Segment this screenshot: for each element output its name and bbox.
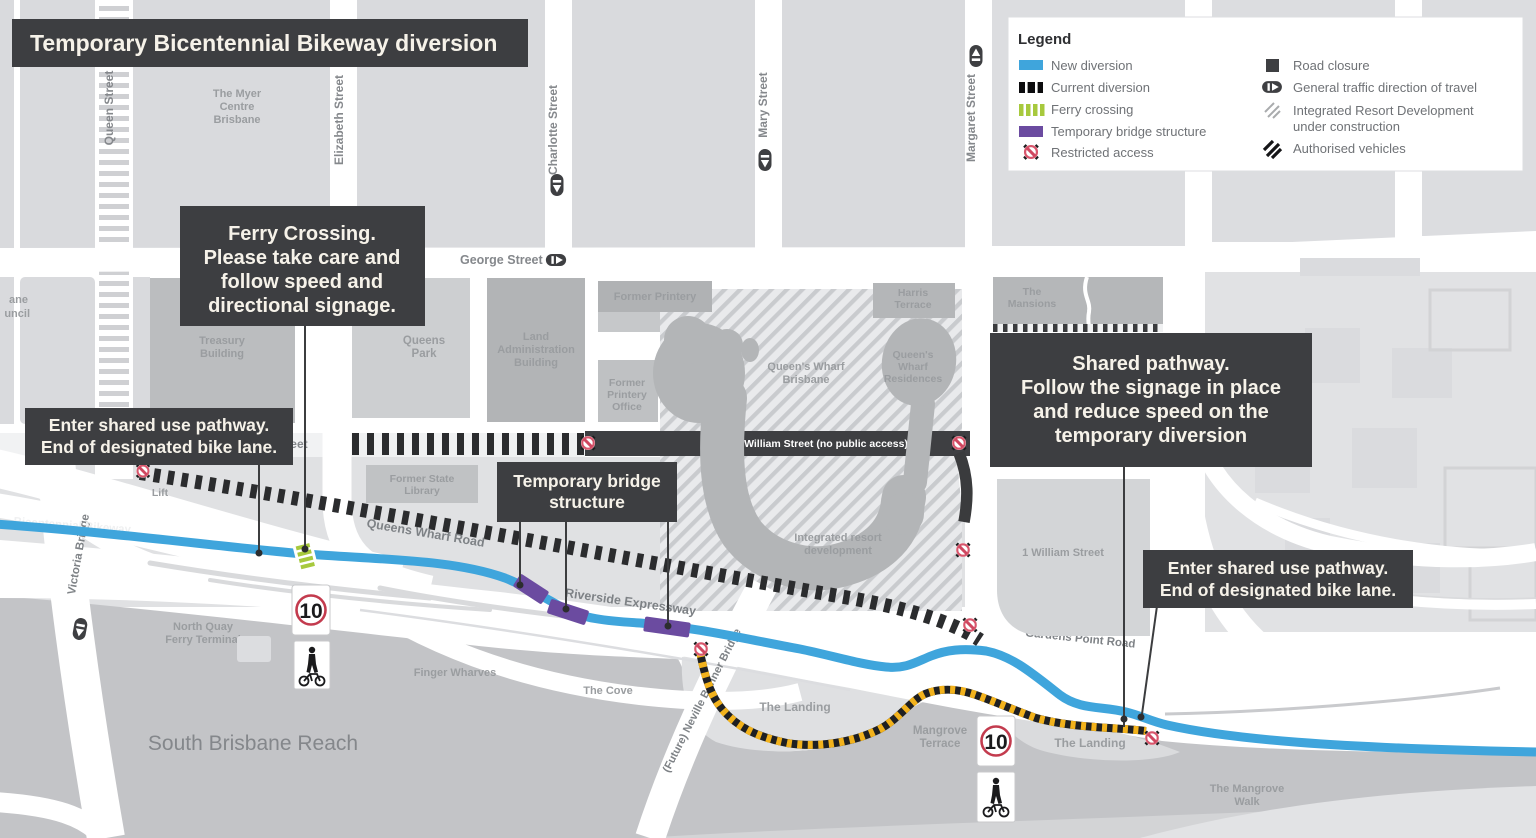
svg-text:The Mangrove: The Mangrove — [1210, 783, 1285, 795]
svg-text:Queen's: Queen's — [892, 349, 933, 361]
svg-text:Integrated resort: Integrated resort — [794, 532, 882, 544]
svg-text:Ferry Terminal: Ferry Terminal — [165, 634, 241, 646]
svg-text:Integrated Resort Development: Integrated Resort Development — [1293, 103, 1474, 118]
svg-text:William Street (no public acce: William Street (no public access) — [744, 438, 908, 450]
svg-text:The: The — [1023, 286, 1042, 298]
svg-text:Road closure: Road closure — [1293, 58, 1370, 73]
svg-text:temporary diversion: temporary diversion — [1055, 425, 1247, 447]
svg-text:North Quay: North Quay — [173, 621, 234, 633]
svg-text:Ferry crossing: Ferry crossing — [1051, 102, 1133, 117]
svg-text:Ferry Crossing.: Ferry Crossing. — [228, 223, 376, 245]
svg-text:Mary Street: Mary Street — [756, 72, 770, 137]
svg-text:Printery: Printery — [607, 389, 647, 401]
svg-text:Library: Library — [404, 485, 440, 497]
svg-text:directional signage.: directional signage. — [208, 295, 396, 317]
svg-text:uncil: uncil — [4, 308, 30, 320]
svg-text:Authorised vehicles: Authorised vehicles — [1293, 141, 1406, 156]
svg-text:Temporary bridge: Temporary bridge — [513, 471, 661, 491]
svg-text:South Brisbane Reach: South Brisbane Reach — [148, 732, 358, 755]
svg-text:Shared pathway.: Shared pathway. — [1072, 353, 1229, 375]
svg-text:Harris: Harris — [898, 287, 929, 299]
svg-text:Walk: Walk — [1234, 796, 1260, 808]
svg-text:Terrace: Terrace — [920, 738, 961, 750]
svg-text:The Landing: The Landing — [1054, 736, 1125, 750]
svg-text:The Cove: The Cove — [583, 685, 633, 697]
svg-text:Enter shared use pathway.: Enter shared use pathway. — [49, 415, 269, 435]
svg-text:follow speed and: follow speed and — [221, 271, 383, 293]
svg-text:End of designated bike lane.: End of designated bike lane. — [1160, 580, 1396, 600]
svg-text:Park: Park — [412, 348, 438, 360]
svg-text:Temporary Bicentennial Bikeway: Temporary Bicentennial Bikeway diversion — [30, 30, 497, 56]
svg-text:Legend: Legend — [1018, 31, 1071, 48]
svg-text:The Myer: The Myer — [213, 88, 262, 100]
svg-text:Please take care and: Please take care and — [204, 247, 401, 269]
svg-text:Current diversion: Current diversion — [1051, 80, 1150, 95]
svg-text:Follow the signage in place: Follow the signage in place — [1021, 377, 1281, 399]
svg-text:Brisbane: Brisbane — [782, 374, 829, 386]
svg-text:Building: Building — [514, 357, 558, 369]
svg-text:Lift: Lift — [152, 487, 169, 499]
svg-text:Former State: Former State — [390, 473, 455, 485]
svg-text:George Street: George Street — [460, 253, 544, 267]
svg-text:New diversion: New diversion — [1051, 58, 1133, 73]
svg-text:Elizabeth Street: Elizabeth Street — [332, 75, 346, 165]
svg-text:Residences: Residences — [884, 373, 943, 385]
svg-text:Administration: Administration — [497, 344, 575, 356]
svg-text:Temporary bridge structure: Temporary bridge structure — [1051, 124, 1206, 139]
svg-text:Enter shared use pathway.: Enter shared use pathway. — [1168, 558, 1388, 578]
svg-text:Treasury: Treasury — [199, 335, 246, 347]
svg-text:Restricted access: Restricted access — [1051, 145, 1154, 160]
svg-text:Terrace: Terrace — [894, 299, 931, 311]
svg-text:Former: Former — [609, 377, 645, 389]
svg-text:Queens: Queens — [403, 335, 445, 347]
svg-text:Former Printery: Former Printery — [614, 291, 697, 303]
svg-text:Land: Land — [523, 331, 549, 343]
svg-text:structure: structure — [549, 492, 625, 512]
svg-text:Queen's Wharf: Queen's Wharf — [767, 361, 845, 373]
svg-text:Finger Wharves: Finger Wharves — [414, 667, 497, 679]
svg-text:and reduce speed on the: and reduce speed on the — [1033, 401, 1269, 423]
svg-text:Centre: Centre — [220, 101, 255, 113]
svg-text:End of designated bike lane.: End of designated bike lane. — [41, 437, 277, 457]
svg-text:Mansions: Mansions — [1008, 298, 1057, 310]
svg-text:The Landing: The Landing — [759, 700, 830, 714]
svg-text:ane: ane — [9, 294, 28, 306]
svg-text:Office: Office — [612, 401, 642, 413]
svg-text:1 William Street: 1 William Street — [1022, 547, 1104, 559]
svg-text:Wharf: Wharf — [898, 361, 928, 373]
svg-text:Brisbane: Brisbane — [213, 114, 260, 126]
svg-text:General traffic direction of t: General traffic direction of travel — [1293, 80, 1477, 95]
svg-text:Margaret Street: Margaret Street — [964, 74, 978, 162]
svg-text:Mangrove: Mangrove — [913, 725, 967, 737]
svg-text:Building: Building — [200, 348, 244, 360]
svg-text:10: 10 — [299, 600, 322, 623]
svg-text:under construction: under construction — [1293, 119, 1400, 134]
svg-text:10: 10 — [984, 731, 1007, 754]
svg-text:Queen Street: Queen Street — [102, 71, 116, 146]
svg-text:development: development — [804, 545, 872, 557]
svg-text:Charlotte Street: Charlotte Street — [546, 85, 560, 175]
